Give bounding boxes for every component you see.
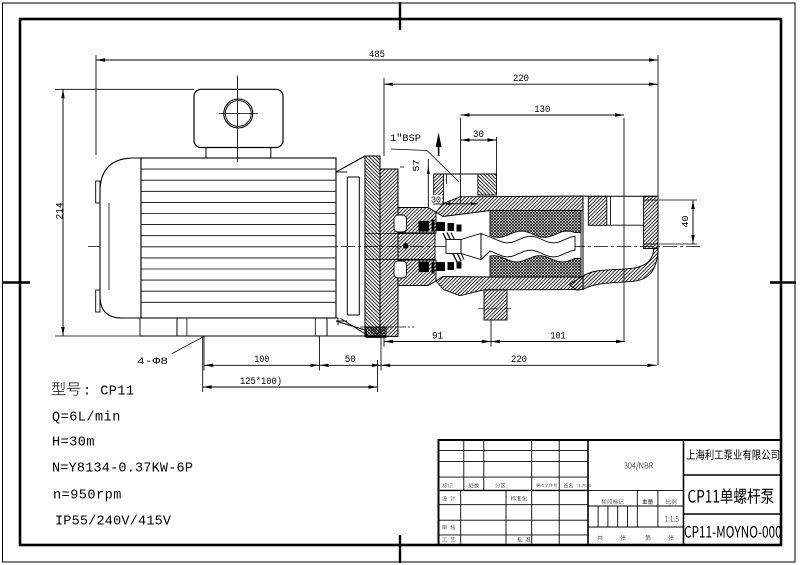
svg-text:IP55/240V/415V: IP55/240V/415V	[55, 515, 172, 530]
svg-text:1"BSP: 1"BSP	[390, 133, 421, 145]
svg-text:40: 40	[680, 215, 691, 227]
svg-text:91: 91	[432, 330, 443, 342]
svg-text:: CP11: : CP11	[83, 385, 135, 400]
svg-text:100: 100	[254, 354, 269, 366]
svg-text:214: 214	[55, 203, 67, 220]
svg-text:220: 220	[511, 354, 527, 366]
svg-text:57: 57	[411, 160, 422, 172]
svg-text:30: 30	[473, 129, 484, 141]
svg-text:101: 101	[551, 330, 566, 342]
svg-text:H=30m: H=30m	[52, 436, 95, 451]
svg-text:130: 130	[534, 104, 550, 116]
svg-text:125*100): 125*100)	[240, 376, 282, 388]
svg-text:30: 30	[431, 196, 441, 206]
svg-text:n=950rpm: n=950rpm	[53, 489, 122, 504]
svg-text:50: 50	[345, 354, 356, 366]
svg-text:N=Y8134-0.37KW-6P: N=Y8134-0.37KW-6P	[52, 462, 193, 477]
svg-text:220: 220	[513, 73, 529, 85]
svg-text:Q=6L/min: Q=6L/min	[52, 411, 121, 426]
svg-text:4-Φ8: 4-Φ8	[137, 356, 168, 368]
svg-text:485: 485	[369, 49, 385, 61]
